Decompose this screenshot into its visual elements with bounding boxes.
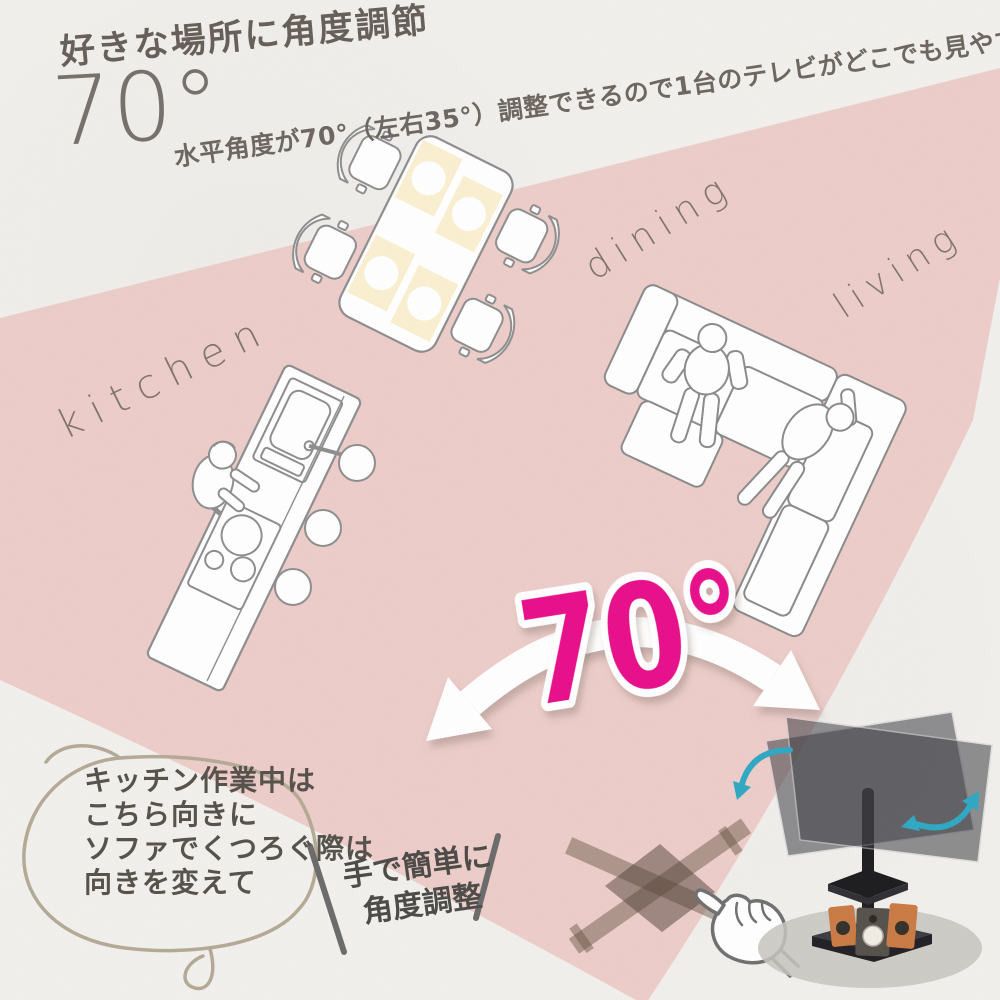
bubble-line: 向きを変えて (84, 866, 374, 900)
bubble-line: ソファでくつろぐ際は (84, 832, 374, 866)
promo-image: 70° (0, 0, 1000, 1000)
speech-bubble-text: キッチン作業中は こちら向きに ソファでくつろぐ際は 向きを変えて (84, 764, 374, 900)
bubble-line: キッチン作業中は (84, 764, 374, 798)
bubble-line: こちら向きに (84, 798, 374, 832)
